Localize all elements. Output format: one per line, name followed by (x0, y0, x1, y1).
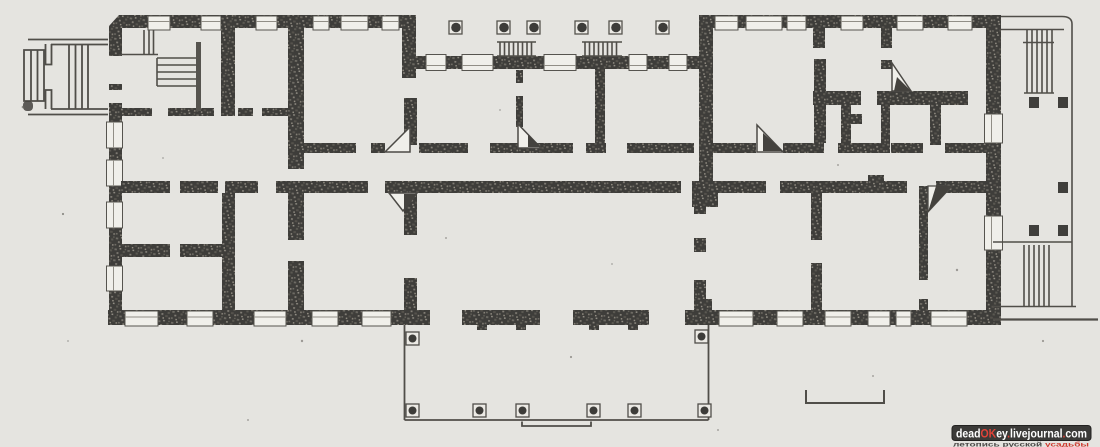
svg-text:deadOKey.livejournal.com: deadOKey.livejournal.com (956, 427, 1087, 441)
svg-text:летопись русской усадьбы: летопись русской усадьбы (953, 441, 1090, 447)
